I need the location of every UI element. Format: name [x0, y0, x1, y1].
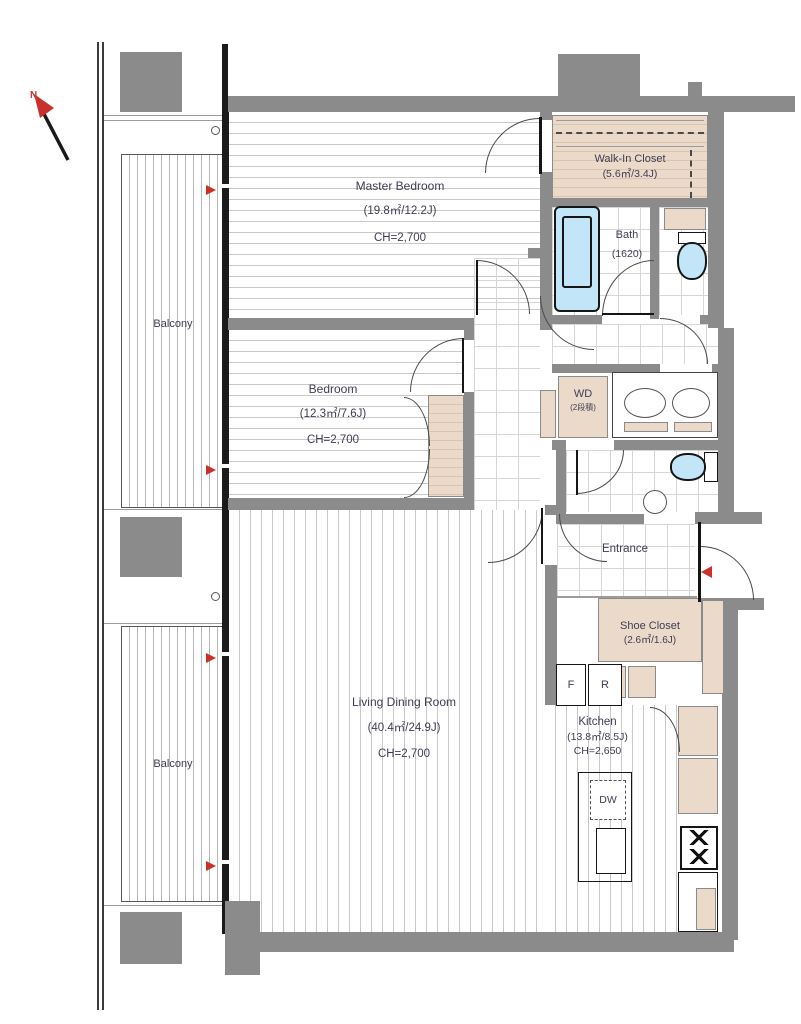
room-label-balcony-lower: Balcony — [131, 758, 215, 771]
vanity-drawer-left — [624, 422, 668, 432]
door-arc-corridor — [540, 296, 594, 350]
room-area-shoe-closet: (2.6㎡/1.6J) — [596, 635, 704, 647]
window-frame-gap — [222, 652, 229, 656]
drain-circle — [211, 592, 220, 601]
wall-ldr-hall-stub — [545, 505, 557, 515]
room-area-kitchen: (13.8㎡/8.5J) — [541, 731, 654, 743]
washer-dryer-note: (2段積) — [558, 403, 608, 412]
wall-mbr-bedroom — [228, 318, 474, 330]
wall-washroom-bottom-left — [552, 440, 566, 450]
room-label-shoe-closet: Shoe Closet — [596, 620, 704, 633]
door-leaf-corridor-mbr — [476, 260, 478, 315]
room-label-master-bedroom: Master Bedroom — [300, 180, 500, 194]
wall-right-lower — [722, 610, 738, 940]
wall-bedroom-ldr — [228, 498, 474, 510]
toilet-lower-tank — [704, 452, 718, 482]
room-ceiling-kitchen: CH=2,650 — [545, 745, 650, 757]
north-label: N — [30, 90, 37, 102]
building-boundary-line — [97, 42, 99, 1010]
vanity-drawer-right — [674, 422, 712, 432]
balcony-edge-line — [104, 115, 222, 116]
kitchen-cabinet-lower — [696, 888, 716, 930]
balcony-upper — [121, 154, 226, 508]
pillar-bottom-left — [120, 912, 182, 964]
bedroom-closet — [428, 395, 464, 497]
door-leaf-ldr — [541, 508, 543, 564]
wic-shelf-line — [556, 146, 704, 147]
room-ceiling-living-dining: CH=2,700 — [304, 748, 504, 761]
pillar-top-center — [558, 54, 640, 98]
window-marker-icon — [206, 861, 216, 871]
room-label-bath: Bath — [584, 229, 670, 242]
balcony-edge-line — [104, 623, 226, 624]
burner-icon — [689, 830, 709, 845]
toilet-upper-bowl — [677, 242, 707, 280]
toilet-hand-sink — [643, 490, 667, 514]
room-label-living-dining: Living Dining Room — [304, 696, 504, 710]
wall-bedroom-right — [464, 392, 474, 510]
wic-shelf-line — [556, 120, 704, 121]
building-boundary-line — [102, 42, 104, 1010]
shoe-closet-box — [628, 666, 656, 698]
dishwasher: DW — [590, 780, 626, 820]
wall-entry-top — [695, 512, 762, 524]
balcony-edge-line — [104, 905, 226, 906]
window-marker-icon — [206, 185, 216, 195]
refrigerator-label: R — [601, 679, 609, 692]
drain-circle — [211, 126, 220, 135]
pillar-top-left — [120, 52, 182, 112]
washer-dryer-label: WD — [558, 388, 608, 401]
room-label-bedroom: Bedroom — [233, 383, 433, 397]
wall-right-upper — [708, 112, 724, 328]
room-ceiling-bedroom: CH=2,700 — [233, 434, 433, 447]
toilet-upper-shelf — [664, 208, 706, 230]
window-marker-icon — [206, 653, 216, 663]
kitchen-sink — [596, 828, 626, 874]
shoe-closet-column — [702, 600, 724, 694]
door-leaf-entry — [698, 522, 701, 602]
room-ceiling-master-bedroom: CH=2,700 — [300, 232, 500, 245]
door-leaf-bath — [602, 313, 654, 315]
room-area-bedroom: (12.3㎡/7.6J) — [233, 408, 433, 421]
balcony-edge-line — [104, 120, 222, 121]
kitchen-cabinet-upper — [678, 706, 718, 756]
floor-plan: F R DW N Master Bedroom (19.8㎡ — [0, 0, 801, 1024]
pillar-mid-left — [120, 517, 182, 577]
room-area-walk-in-closet: (5.6㎡/3.4J) — [560, 168, 700, 180]
window-frame-gap — [222, 464, 229, 468]
balcony-edge-line — [104, 509, 226, 510]
door-leaf-toilet-lower — [576, 450, 578, 495]
window-wall — [222, 112, 229, 934]
refrigerator-space: R — [588, 664, 622, 706]
dishwasher-label: DW — [599, 794, 617, 806]
washroom-cabinet — [540, 390, 556, 438]
wall-bottom — [228, 932, 734, 952]
wall-top-right-notch — [688, 82, 702, 98]
vanity-sink-left — [624, 388, 666, 418]
room-label-entrance: Entrance — [578, 543, 672, 556]
room-size-bath: (1620) — [584, 248, 670, 260]
room-area-master-bedroom: (19.8㎡/12.2J) — [300, 205, 500, 218]
wic-hanger-rod — [556, 132, 704, 134]
wall-corridor-stub — [528, 248, 542, 258]
room-area-living-dining: (40.4㎡/24.9J) — [304, 722, 504, 735]
wall-right-middle — [718, 328, 734, 514]
window-marker-icon — [206, 465, 216, 475]
wall-bedroom-right-stub — [464, 330, 474, 340]
kitchen-counter-tan — [678, 758, 718, 814]
entry-direction-icon — [701, 566, 712, 578]
wall-toilet-bottom-stub — [700, 315, 708, 324]
floor-living-dining — [229, 510, 545, 932]
window-frame-gap — [222, 184, 229, 188]
room-label-walk-in-closet: Walk-In Closet — [560, 153, 700, 166]
freezer-space: F — [556, 664, 586, 706]
door-leaf-mbr-wic — [539, 117, 542, 174]
door-leaf-bedroom — [462, 338, 464, 393]
burner-icon — [689, 849, 709, 864]
vanity-sink-right — [672, 388, 710, 418]
wall-washroom-bottom — [614, 440, 718, 450]
north-arrow-icon: N — [24, 88, 84, 168]
room-label-kitchen: Kitchen — [545, 716, 650, 729]
window-frame-gap — [222, 860, 229, 864]
room-label-balcony-upper: Balcony — [131, 318, 215, 331]
freezer-label: F — [568, 679, 575, 692]
wall-toilet-lower-left — [556, 450, 566, 520]
pillar-bottom-ldr — [225, 901, 260, 975]
toilet-lower-bowl — [670, 453, 706, 481]
wall-top — [228, 96, 795, 112]
